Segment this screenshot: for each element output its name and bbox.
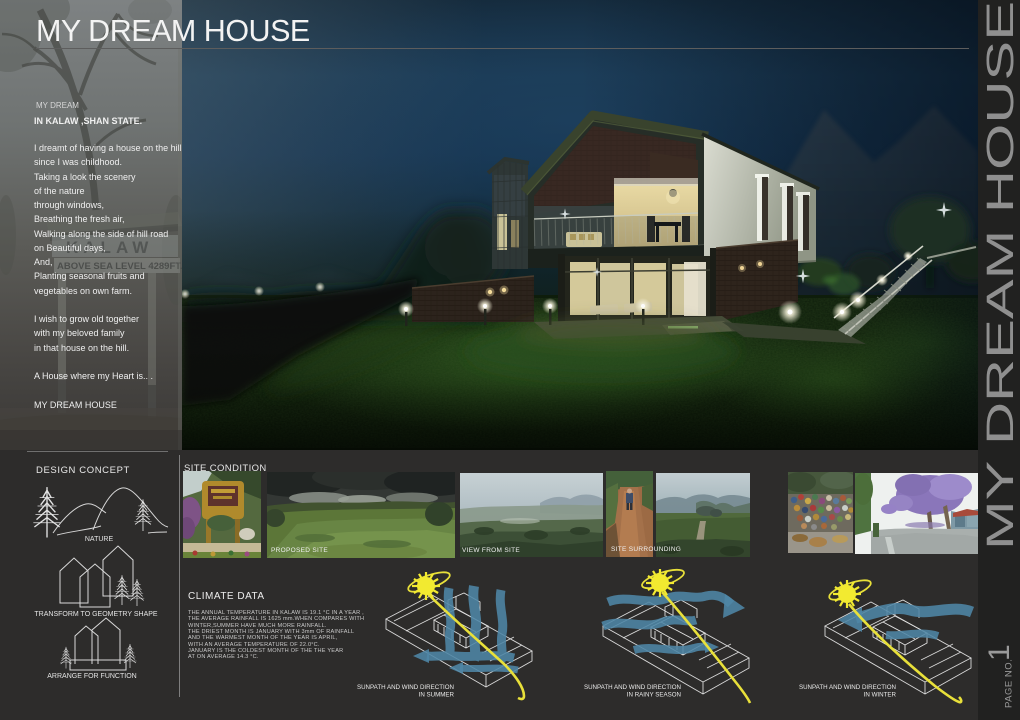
- svg-text:DESIGN CONCEPT: DESIGN CONCEPT: [36, 465, 130, 476]
- svg-text:SUNPATH AND WIND DIRECTION: SUNPATH AND WIND DIRECTION: [584, 684, 681, 691]
- svg-text:IN RAINY SEASON: IN RAINY SEASON: [627, 692, 681, 699]
- svg-text:ARRANGE FOR FUNCTION: ARRANGE FOR FUNCTION: [47, 673, 136, 680]
- svg-text:IN SUMMER: IN SUMMER: [419, 692, 455, 699]
- svg-text:PAGE NO.: PAGE NO.: [1004, 659, 1015, 708]
- svg-text:IN WINTER: IN WINTER: [864, 692, 897, 699]
- svg-text:TRANSFORM TO GEOMETRY SHAPE: TRANSFORM TO GEOMETRY SHAPE: [34, 611, 158, 618]
- svg-text:SUNPATH AND WIND DIRECTION: SUNPATH AND WIND DIRECTION: [357, 684, 454, 691]
- svg-text:NATURE: NATURE: [85, 536, 114, 543]
- svg-text:SUNPATH AND WIND DIRECTION: SUNPATH AND WIND DIRECTION: [799, 684, 896, 691]
- svg-text:MY DREAM HOUSE: MY DREAM HOUSE: [979, 1, 1020, 550]
- svg-text:1: 1: [983, 644, 1016, 661]
